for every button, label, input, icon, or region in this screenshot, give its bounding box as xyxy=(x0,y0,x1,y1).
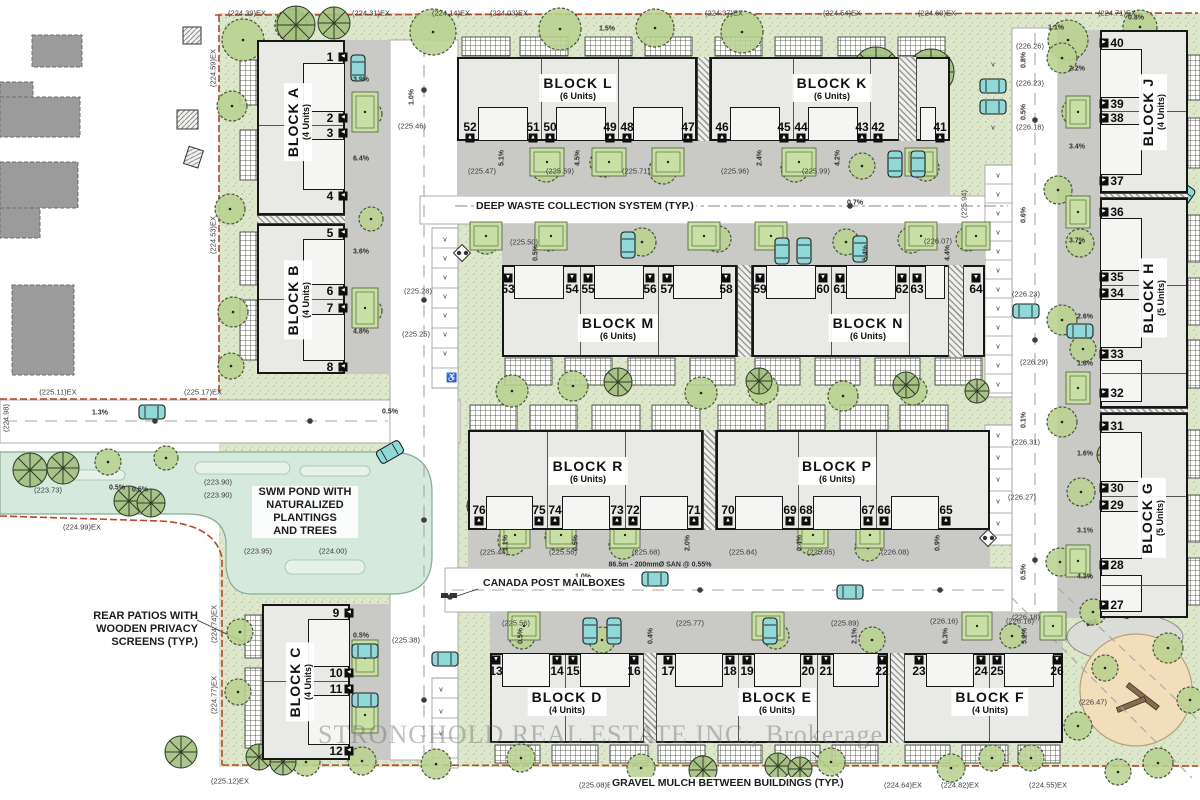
car-icon xyxy=(352,693,378,707)
rear-patio-grid xyxy=(1188,430,1200,478)
elevation-label: (224.00) xyxy=(319,547,347,556)
slope-label: 0.1% xyxy=(1021,412,1028,428)
elevation-label: (224.74)EX xyxy=(210,605,219,643)
tree-deciduous-icon xyxy=(1067,478,1095,506)
unit-number-44: 44 xyxy=(794,120,807,134)
elevation-label: (224.60)EX xyxy=(918,9,956,18)
block-label-J: BLOCK J(4 Units) xyxy=(1139,74,1167,150)
unit-number-41: 41 xyxy=(933,120,946,134)
unit-entry-marker: ► xyxy=(1100,273,1109,282)
garage-box xyxy=(1100,218,1142,271)
slope-label: 2.0% xyxy=(685,535,692,551)
elevation-label: (224.82)EX xyxy=(941,781,979,790)
rear-patio-grid xyxy=(462,37,510,56)
block-name: BLOCK G xyxy=(1139,482,1155,554)
block-label-N: BLOCK N(6 Units) xyxy=(829,314,908,342)
car-icon xyxy=(432,652,458,666)
unit-entry-marker: ▼ xyxy=(898,274,907,283)
unit-entry-marker: ▲ xyxy=(786,517,795,526)
block-name: BLOCK B xyxy=(285,265,301,336)
unit-number-69: 69 xyxy=(783,503,796,517)
garage-box xyxy=(730,107,780,141)
rear-patio-grid xyxy=(815,358,860,385)
car-icon xyxy=(763,618,777,644)
unit-number-37: 37 xyxy=(1110,174,1123,188)
block-name: BLOCK F xyxy=(955,689,1024,705)
unit-entry-marker: ▼ xyxy=(743,656,752,665)
tree-deciduous-icon xyxy=(1143,748,1173,778)
tree-deciduous-icon xyxy=(154,446,178,470)
slope-label: 3.6% xyxy=(353,249,369,256)
parking-space-marker: v xyxy=(443,351,447,358)
unit-entry-marker: ▼ xyxy=(569,656,578,665)
unit-entry-marker: ▼ xyxy=(630,656,639,665)
unit-entry-marker: ▼ xyxy=(878,656,887,665)
tree-deciduous-icon xyxy=(859,627,885,653)
unit-entry-marker: ▲ xyxy=(797,134,806,143)
garage-box xyxy=(633,107,683,141)
rear-patio-grid xyxy=(1188,215,1200,262)
rear-patio-grid xyxy=(900,405,948,430)
slope-label: 0.5% xyxy=(109,485,125,492)
unit-number-20: 20 xyxy=(801,664,814,678)
shrub-icon xyxy=(1066,372,1090,404)
unit-number-2: 2 xyxy=(327,111,334,125)
slope-label: 0.5% xyxy=(518,628,525,644)
elevation-label: (225.68) xyxy=(632,548,660,557)
elevation-label: (226.23) xyxy=(1016,79,1044,88)
tree-conifer-icon xyxy=(893,372,919,398)
elevation-label: (224.14)EX xyxy=(432,9,470,18)
elevation-label: (226.08) xyxy=(881,548,909,557)
slope-label: 0.5% xyxy=(1021,104,1028,120)
unit-entry-marker: ▲ xyxy=(874,134,883,143)
block-name: BLOCK H xyxy=(1140,263,1156,334)
tree-deciduous-icon xyxy=(979,745,1005,771)
slope-label: 0.5% xyxy=(132,487,148,494)
unit-entry-marker: ► xyxy=(1100,561,1109,570)
unit-number-22: 22 xyxy=(875,664,888,678)
garage-box xyxy=(833,653,879,687)
block-unit-count: (6 Units) xyxy=(582,331,654,341)
block-unit-count: (4 Units) xyxy=(955,705,1024,715)
rear-patios-line1: REAR PATIOS WITH xyxy=(93,610,198,622)
unit-number-49: 49 xyxy=(603,120,616,134)
slope-label: 6.3% xyxy=(943,628,950,644)
elevation-label: (226.31) xyxy=(1012,438,1040,447)
tree-deciduous-icon xyxy=(685,377,717,409)
shrub-icon xyxy=(962,612,992,640)
unit-number-76: 76 xyxy=(472,503,485,517)
garage-box xyxy=(486,496,533,530)
slope-label: 1.0% xyxy=(409,89,416,105)
block-name: BLOCK K xyxy=(797,75,868,91)
slope-label: 0.8% xyxy=(1021,52,1028,68)
slope-label: 0.5% xyxy=(1021,564,1028,580)
elevation-label: (223.90) xyxy=(204,491,232,500)
block-label-H: BLOCK H(5 Units) xyxy=(1139,259,1167,338)
garage-box xyxy=(580,653,630,687)
block-unit-count: (4 Units) xyxy=(301,265,311,336)
elevation-label: (225.46) xyxy=(398,122,426,131)
tree-conifer-icon xyxy=(277,6,315,44)
rear-patio-grid xyxy=(1188,495,1200,542)
unit-number-27: 27 xyxy=(1110,598,1123,612)
garage-box xyxy=(846,265,896,299)
unit-number-75: 75 xyxy=(532,503,545,517)
garage-box xyxy=(808,107,858,141)
unit-number-33: 33 xyxy=(1110,347,1123,361)
car-icon xyxy=(607,618,621,644)
shrub-icon xyxy=(962,222,990,250)
elevation-label: (224.99)EX xyxy=(63,523,101,532)
parking-space-marker: v xyxy=(996,499,1000,506)
elevation-label: (226.29) xyxy=(1020,358,1048,367)
garage-box xyxy=(675,653,723,687)
unit-entry-marker: ▼ xyxy=(819,274,828,283)
slope-label: 3.4% xyxy=(1069,144,1085,151)
slope-label: 1.5% xyxy=(599,26,615,33)
garage-box xyxy=(478,107,528,141)
tree-deciduous-icon xyxy=(1177,687,1200,713)
slope-label: 1.1% xyxy=(1048,25,1064,32)
unit-number-29: 29 xyxy=(1110,498,1123,512)
rear-patio-grid xyxy=(1188,340,1200,388)
unit-entry-marker: ▲ xyxy=(942,517,951,526)
tree-conifer-icon xyxy=(165,736,197,768)
block-unit-count: (6 Units) xyxy=(742,705,812,715)
unit-number-1: 1 xyxy=(327,50,334,64)
parking-space-marker: v xyxy=(996,433,1000,440)
swm-pond-label: SWM POND WITH NATURALIZED PLANTINGS AND … xyxy=(252,486,358,538)
elevation-label: (225.99) xyxy=(802,167,830,176)
walkway-hatch xyxy=(1100,193,1188,198)
elevation-label: (224.03)EX xyxy=(490,9,528,18)
unit-number-25: 25 xyxy=(990,664,1003,678)
tree-deciduous-icon xyxy=(218,297,248,327)
slope-label: 0.7% xyxy=(847,200,863,207)
elevation-label: (225.38) xyxy=(392,636,420,645)
elevation-label: (224.39)EX xyxy=(228,9,266,18)
rear-patio-grid xyxy=(592,405,640,430)
block-unit-count: (4 Units) xyxy=(532,705,603,715)
unit-entry-marker: ► xyxy=(1100,501,1109,510)
garage-box xyxy=(1100,49,1142,98)
tree-deciduous-icon xyxy=(1047,407,1077,437)
block-label-K: BLOCK K(6 Units) xyxy=(793,74,872,102)
block-label-A: BLOCK A(4 Units) xyxy=(284,83,312,161)
existing-buildings xyxy=(0,35,82,375)
elevation-label: (226.23) xyxy=(1012,290,1040,299)
block-M xyxy=(502,265,737,357)
unit-entry-marker: ▲ xyxy=(613,517,622,526)
tree-deciduous-icon xyxy=(95,449,121,475)
tree-conifer-icon xyxy=(13,453,47,487)
slope-label: 5.2% xyxy=(1022,628,1029,644)
unit-number-56: 56 xyxy=(643,282,656,296)
unit-number-38: 38 xyxy=(1110,111,1123,125)
slope-label: 1.8% xyxy=(1077,361,1093,368)
block-label-E: BLOCK E(6 Units) xyxy=(738,688,816,716)
unit-entry-marker: ◄ xyxy=(345,685,354,694)
car-icon xyxy=(797,238,811,264)
parking-space-marker: v xyxy=(439,687,443,694)
unit-number-21: 21 xyxy=(819,664,832,678)
unit-entry-marker: ▼ xyxy=(584,274,593,283)
rear-patio-grid xyxy=(240,130,257,180)
gravel-mulch-label: GRAVEL MULCH BETWEEN BUILDINGS (TYP.) xyxy=(610,777,846,789)
block-name: BLOCK R xyxy=(553,458,624,474)
garage-box xyxy=(673,265,722,299)
unit-entry-marker: ▲ xyxy=(551,517,560,526)
unit-number-65: 65 xyxy=(939,503,952,517)
parking-space-marker: v xyxy=(443,294,447,301)
garage-box xyxy=(556,107,606,141)
unit-number-62: 62 xyxy=(895,282,908,296)
unit-number-6: 6 xyxy=(327,284,334,298)
garage-box xyxy=(1100,299,1142,348)
tree-conifer-icon xyxy=(765,753,791,779)
unit-entry-marker: ▲ xyxy=(529,134,538,143)
unit-entry-marker: ▼ xyxy=(756,274,765,283)
elevation-label: (225.28) xyxy=(404,287,432,296)
walkway-hatch xyxy=(890,653,905,743)
unit-entry-marker: ▼ xyxy=(722,274,731,283)
unit-number-34: 34 xyxy=(1110,286,1123,300)
tree-deciduous-icon xyxy=(225,679,251,705)
elevation-label: (225.77) xyxy=(676,619,704,628)
block-name: BLOCK M xyxy=(582,315,654,331)
unit-number-55: 55 xyxy=(581,282,594,296)
unit-entry-marker: ▼ xyxy=(663,274,672,283)
unit-number-4: 4 xyxy=(327,189,334,203)
garage-box xyxy=(1100,511,1142,559)
unit-entry-marker: ► xyxy=(1100,100,1109,109)
garage-box xyxy=(562,496,610,530)
unit-entry-marker: ▼ xyxy=(1053,656,1062,665)
block-label-D: BLOCK D(4 Units) xyxy=(528,688,607,716)
garage-box xyxy=(891,496,939,530)
unit-number-10: 10 xyxy=(329,666,342,680)
unit-number-66: 66 xyxy=(877,503,890,517)
parking-space-marker: v xyxy=(996,230,1000,237)
walkway-hatch xyxy=(697,57,710,141)
unit-entry-marker: ▼ xyxy=(568,274,577,283)
slope-label: 5.4% xyxy=(863,245,870,261)
shrub-icon xyxy=(352,92,378,132)
unit-entry-marker: ► xyxy=(1100,484,1109,493)
slope-label: 0.5% xyxy=(382,409,398,416)
rear-patio-grid xyxy=(775,37,822,56)
unit-entry-marker: ► xyxy=(1100,39,1109,48)
elevation-label: (224.31)EX xyxy=(352,9,390,18)
unit-entry-marker: ▲ xyxy=(718,134,727,143)
tree-deciduous-icon xyxy=(217,91,247,121)
parking-space-marker: v xyxy=(996,344,1000,351)
unit-number-52: 52 xyxy=(463,120,476,134)
unit-number-8: 8 xyxy=(327,360,334,374)
unit-number-73: 73 xyxy=(610,503,623,517)
tree-conifer-icon xyxy=(47,452,79,484)
car-icon xyxy=(583,618,597,644)
rear-patios-line3: SCREENS (TYP.) xyxy=(111,636,198,648)
block-unit-count: (6 Units) xyxy=(543,91,612,101)
elevation-label: (226.47) xyxy=(1079,698,1107,707)
car-icon xyxy=(621,232,635,258)
rear-patio-grid xyxy=(585,37,632,56)
unit-number-9: 9 xyxy=(333,606,340,620)
unit-entry-marker: ▲ xyxy=(880,517,889,526)
unit-entry-marker: ◄ xyxy=(339,192,348,201)
unit-number-13: 13 xyxy=(489,664,502,678)
unit-number-46: 46 xyxy=(715,120,728,134)
unit-entry-marker: ◄ xyxy=(339,53,348,62)
slope-label: 0.8% xyxy=(1128,15,1144,22)
slope-label: 0.9% xyxy=(935,535,942,551)
car-icon xyxy=(911,151,925,177)
unit-entry-marker: ◄ xyxy=(345,609,354,618)
tree-deciduous-icon xyxy=(1153,633,1183,663)
shrub-icon xyxy=(470,222,502,250)
tree-deciduous-icon xyxy=(636,9,674,47)
car-icon xyxy=(775,238,789,264)
slope-label: 3.1% xyxy=(1077,528,1093,535)
car-icon xyxy=(837,585,863,599)
parking-space-marker: v xyxy=(996,306,1000,313)
site-plan-canvas: ♿BLOCK A(4 Units)1◄2◄3◄4◄BLOCK B(4 Units… xyxy=(0,0,1200,800)
tree-deciduous-icon xyxy=(421,749,451,779)
car-icon xyxy=(980,100,1006,114)
tree-deciduous-icon xyxy=(496,375,528,407)
block-name: BLOCK N xyxy=(833,315,904,331)
block-name: BLOCK L xyxy=(543,75,612,91)
unit-entry-marker: ► xyxy=(1100,114,1109,123)
elevation-label: (223.73) xyxy=(34,486,62,495)
rear-patio-grid xyxy=(245,668,262,748)
canada-post-label: CANADA POST MAILBOXES xyxy=(481,577,627,589)
parking-space-marker: v xyxy=(991,62,995,69)
shrub-icon xyxy=(352,288,378,328)
rear-patio-grid xyxy=(628,358,675,385)
parking-space-marker: v xyxy=(443,256,447,263)
garage-box xyxy=(594,265,644,299)
unit-number-60: 60 xyxy=(816,282,829,296)
garage-box xyxy=(1100,432,1142,482)
rear-patio-grid xyxy=(1188,278,1200,325)
unit-number-54: 54 xyxy=(565,282,578,296)
slope-label: 2.1% xyxy=(852,628,859,644)
unit-number-19: 19 xyxy=(740,664,753,678)
unit-number-43: 43 xyxy=(855,120,868,134)
deep-waste-label: DEEP WASTE COLLECTION SYSTEM (TYP.) xyxy=(474,200,696,212)
unit-number-17: 17 xyxy=(661,664,674,678)
block-unit-count: (6 Units) xyxy=(797,91,868,101)
elevation-label: (226.16) xyxy=(930,617,958,626)
unit-entry-marker: ▲ xyxy=(606,134,615,143)
unit-entry-marker: ▲ xyxy=(936,134,945,143)
elevation-label: (225.59) xyxy=(546,167,574,176)
garage-box xyxy=(926,653,974,687)
unit-number-30: 30 xyxy=(1110,481,1123,495)
car-icon xyxy=(888,151,902,177)
unit-number-26: 26 xyxy=(1050,664,1063,678)
block-unit-count: (5 Units) xyxy=(1156,263,1166,334)
garage-box xyxy=(640,496,688,530)
garage-box xyxy=(502,653,550,687)
parking-space-marker: v xyxy=(996,382,1000,389)
tree-conifer-icon xyxy=(318,7,350,39)
unit-entry-marker: ▲ xyxy=(858,134,867,143)
block-name: BLOCK D xyxy=(532,689,603,705)
block-unit-count: (5 Units) xyxy=(1155,482,1165,554)
swm-pond-line3: PLANTINGS xyxy=(273,512,337,524)
unit-number-16: 16 xyxy=(627,664,640,678)
tree-conifer-icon xyxy=(965,379,989,403)
unit-entry-marker: ▼ xyxy=(726,656,735,665)
unit-entry-marker: ▼ xyxy=(913,274,922,283)
unit-number-5: 5 xyxy=(327,226,334,240)
rear-patio-grid xyxy=(778,405,825,430)
parking-space-marker: v xyxy=(996,192,1000,199)
parking-space-marker: v xyxy=(443,275,447,282)
block-unit-count: (4 Units) xyxy=(301,87,311,157)
elevation-label: (224.54)EX xyxy=(823,9,861,18)
unit-number-72: 72 xyxy=(626,503,639,517)
garage-box xyxy=(813,496,861,530)
unit-entry-marker: ► xyxy=(1100,289,1109,298)
unit-number-28: 28 xyxy=(1110,558,1123,572)
elevation-label: (225.94) xyxy=(960,190,969,218)
unit-entry-marker: ▲ xyxy=(475,517,484,526)
unit-number-35: 35 xyxy=(1110,270,1123,284)
slope-label: 0.5% xyxy=(353,633,369,640)
tree-deciduous-icon xyxy=(1064,712,1092,740)
car-icon xyxy=(642,572,668,586)
unit-number-15: 15 xyxy=(566,664,579,678)
unit-number-50: 50 xyxy=(543,120,556,134)
elevation-label: (223.95) xyxy=(244,547,272,556)
garage-box xyxy=(1100,124,1142,175)
unit-entry-marker: ▼ xyxy=(972,274,981,283)
accessible-parking-icon: ♿ xyxy=(446,373,457,384)
block-name: BLOCK J xyxy=(1140,78,1156,146)
unit-number-58: 58 xyxy=(719,282,732,296)
tree-deciduous-icon xyxy=(359,207,383,231)
elevation-label: (225.47) xyxy=(468,167,496,176)
garage-box xyxy=(308,619,350,667)
unit-number-61: 61 xyxy=(833,282,846,296)
elevation-label: (225.25) xyxy=(402,330,430,339)
unit-number-53: 53 xyxy=(501,282,514,296)
slope-label: 4.2% xyxy=(835,150,842,166)
unit-number-70: 70 xyxy=(721,503,734,517)
swm-pond-line2: NATURALIZED xyxy=(266,499,343,511)
slope-label: 4.3% xyxy=(1077,574,1093,581)
tree-deciduous-icon xyxy=(1000,624,1024,648)
rear-patio-grid xyxy=(1188,55,1200,100)
tree-conifer-icon xyxy=(604,368,632,396)
walkway-hatch xyxy=(737,265,752,357)
unit-entry-marker: ◄ xyxy=(345,669,354,678)
party-wall xyxy=(618,59,619,139)
elevation-label: (225.11)EX xyxy=(39,388,76,397)
slope-label: 1.1% xyxy=(503,535,510,551)
elevation-label: (224.53)EX xyxy=(209,216,218,254)
elevation-label: (225.71) xyxy=(622,167,650,176)
party-wall xyxy=(1102,585,1186,586)
block-label-M: BLOCK M(6 Units) xyxy=(578,314,658,342)
shrub-icon xyxy=(1066,196,1090,228)
